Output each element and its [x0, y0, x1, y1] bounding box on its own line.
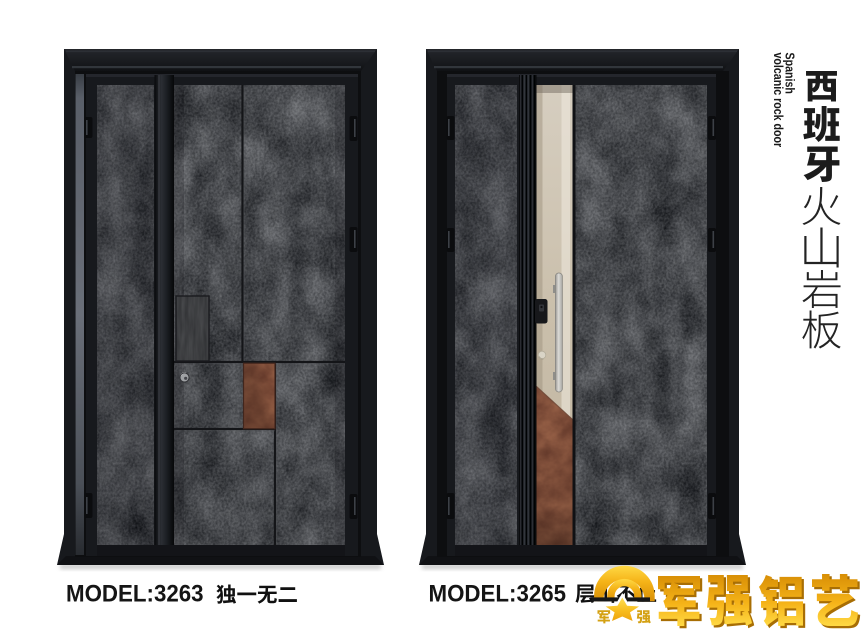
svg-text:MODEL:3263: MODEL:3263 [66, 580, 204, 607]
svg-text:volcanic rock door: volcanic rock door [771, 53, 786, 148]
svg-text:MODEL:3265: MODEL:3265 [429, 580, 567, 607]
